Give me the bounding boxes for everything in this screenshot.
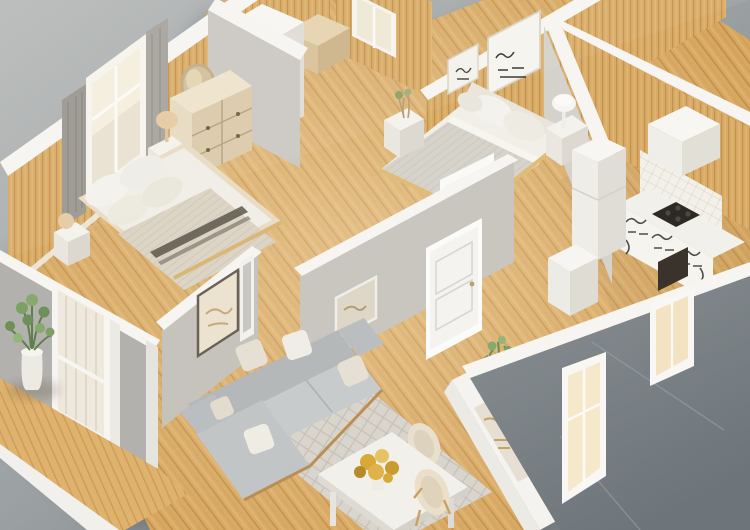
refrigerator — [572, 136, 626, 260]
narrow-mirror-panel — [240, 254, 254, 342]
plant-pot — [22, 352, 43, 390]
apartment-scene-canvas — [0, 0, 750, 530]
vase — [372, 478, 384, 490]
facade-trim — [146, 340, 158, 472]
isometric-apartment-render — [0, 0, 750, 530]
white-storage-cube — [548, 244, 598, 316]
door-knob — [470, 282, 475, 287]
table-leg — [330, 492, 336, 526]
